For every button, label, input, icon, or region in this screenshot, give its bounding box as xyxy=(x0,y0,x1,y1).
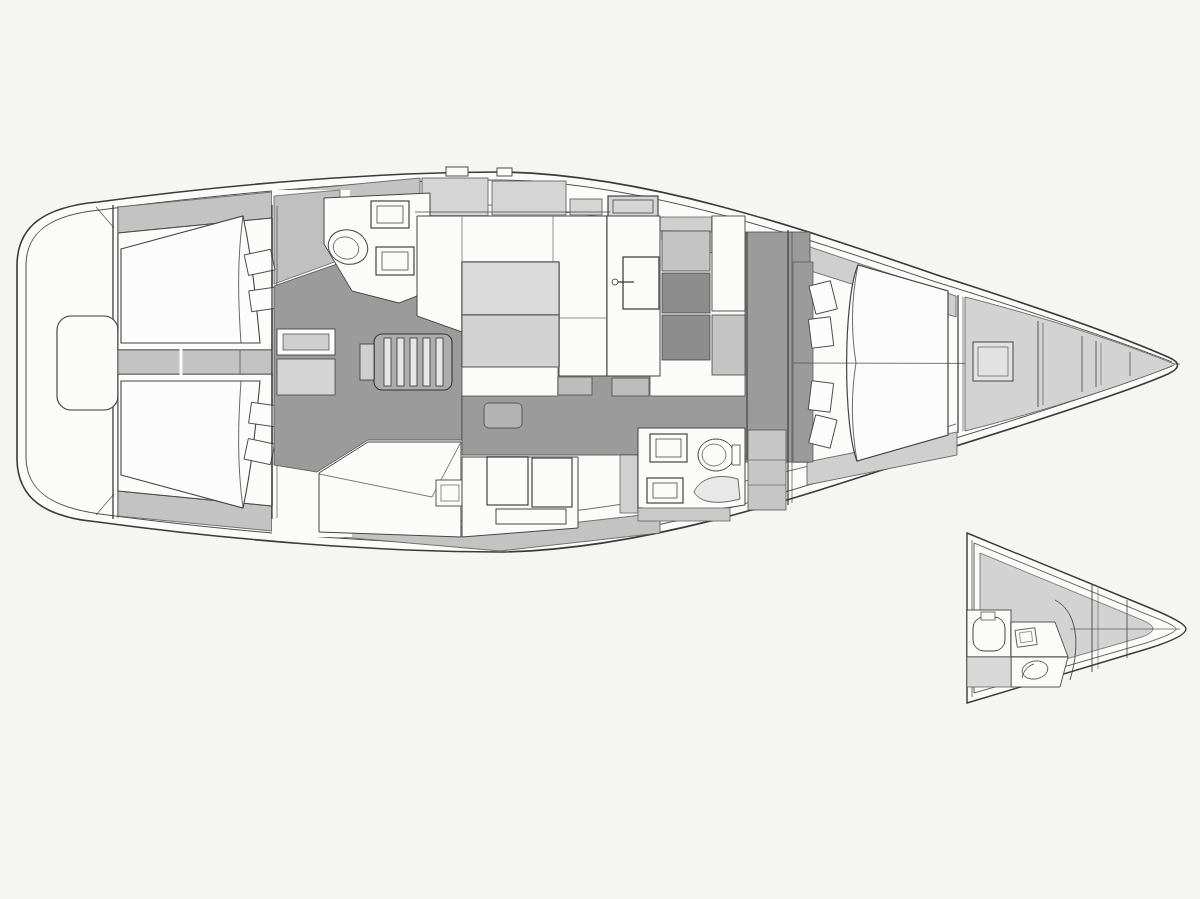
ladder-step xyxy=(423,338,430,386)
fwd-head-side-locker xyxy=(620,455,638,513)
locker-box-2 xyxy=(612,378,649,396)
nav-drawer xyxy=(496,509,566,524)
nav-chart-table xyxy=(532,458,572,507)
galley-sink xyxy=(623,257,659,309)
pillow xyxy=(808,317,833,348)
pillow xyxy=(808,381,833,412)
nav-seat xyxy=(487,457,528,505)
galley-stove-block xyxy=(662,231,710,271)
galley-counter-block-1 xyxy=(662,273,710,313)
ladder-side-rail xyxy=(360,344,374,380)
vestibule-hatch-2 xyxy=(277,359,335,395)
salon-table-leaf-bottom xyxy=(462,315,559,367)
top-locker-b xyxy=(492,181,566,215)
ladder-step xyxy=(436,338,443,386)
ladder-step xyxy=(397,338,404,386)
fwd-head-toilet-tank xyxy=(732,445,740,465)
bow-windlass-box xyxy=(973,342,1013,381)
vestibule-hatch-inner xyxy=(283,334,329,350)
fwd-head-sink-2 xyxy=(647,478,683,503)
fwd-head-bottom-band xyxy=(638,508,730,521)
locker-box-1 xyxy=(558,377,592,395)
top-locker-c xyxy=(570,199,602,215)
inset-toilet-tank xyxy=(981,612,995,620)
nav-berth-box xyxy=(436,480,464,506)
galley-cabinet xyxy=(712,315,745,375)
deck-plan-svg xyxy=(0,0,1200,899)
deck-hatch-bump-2 xyxy=(497,168,512,176)
ladder-step xyxy=(384,338,391,386)
galley-faucet-base xyxy=(612,279,618,285)
fwd-head-wardrobe xyxy=(748,430,786,510)
inset-sink xyxy=(1015,628,1037,648)
deck-hatch-bump-1 xyxy=(446,167,468,176)
fwd-head-sink-1 xyxy=(650,434,687,462)
floor-step xyxy=(484,403,522,428)
swim-locker xyxy=(57,316,118,410)
aft-corridor xyxy=(118,350,272,374)
deck-window xyxy=(608,196,658,217)
galley-fridge xyxy=(712,216,745,311)
top-locker-a xyxy=(422,178,488,216)
inset-grey-locker xyxy=(967,657,1011,687)
yacht-deck-plan-page xyxy=(0,0,1200,899)
salon-table-leaf-top xyxy=(462,262,559,315)
inset-toilet xyxy=(973,617,1005,651)
galley-counter-block-2 xyxy=(662,315,710,360)
ladder-step xyxy=(410,338,417,386)
